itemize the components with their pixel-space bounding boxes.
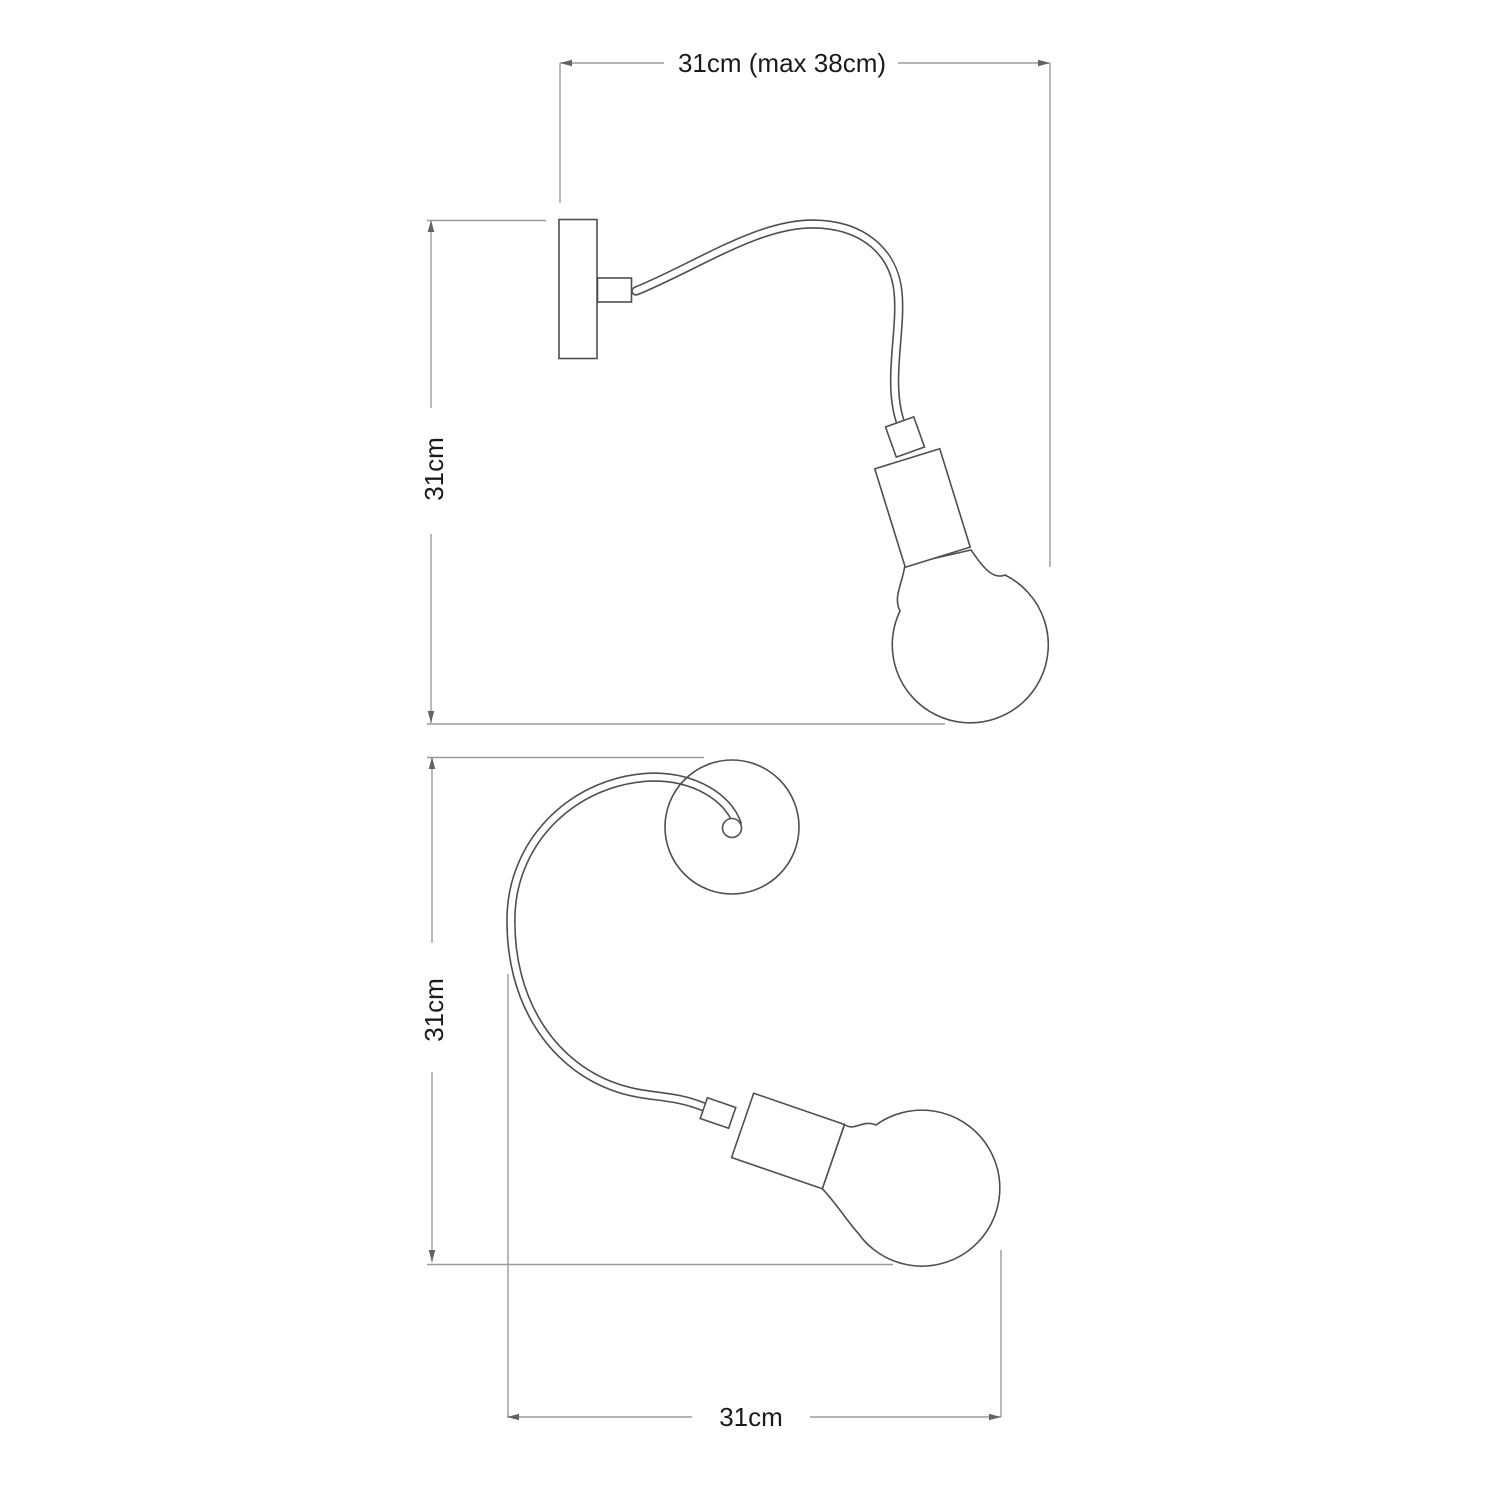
side-view-width-dimension-label: 31cm (max 38cm) bbox=[678, 48, 886, 78]
light-bulb bbox=[892, 550, 1048, 723]
top-view: 31cm 31cm bbox=[419, 757, 1001, 1432]
ferrule bbox=[700, 1098, 736, 1129]
side-view-height-dimension-label: 31cm bbox=[419, 437, 449, 501]
lamp-dimension-drawing: 31cm (max 38cm) 31cm bbox=[0, 0, 1500, 1500]
top-view-lamp bbox=[511, 760, 1000, 1266]
dimension-arrow bbox=[507, 1414, 519, 1421]
ferrule bbox=[885, 417, 924, 457]
flex-arm bbox=[636, 224, 900, 421]
lamp-socket bbox=[875, 449, 970, 568]
lamp-socket bbox=[732, 1093, 845, 1189]
top-view-height-dimension-label: 31cm bbox=[419, 978, 449, 1042]
dimension-arrow bbox=[428, 711, 435, 723]
mount-stub bbox=[598, 278, 632, 302]
dimension-arrow bbox=[429, 757, 436, 769]
flex-arm-tip bbox=[723, 819, 742, 838]
dimension-arrow bbox=[989, 1414, 1001, 1421]
dimension-arrow bbox=[428, 220, 435, 232]
side-view-lamp bbox=[559, 220, 1048, 723]
top-view-width-dimension-label: 31cm bbox=[719, 1402, 783, 1432]
side-view: 31cm (max 38cm) 31cm bbox=[419, 48, 1050, 724]
dimension-arrow bbox=[1038, 60, 1050, 67]
dimension-arrow bbox=[429, 1250, 436, 1262]
dimension-arrow bbox=[560, 60, 572, 67]
technical-drawing-page: 31cm (max 38cm) 31cm bbox=[0, 0, 1500, 1500]
top-view-dimensions: 31cm 31cm bbox=[419, 757, 1001, 1432]
wall-plate bbox=[559, 220, 597, 359]
light-bulb bbox=[822, 1110, 1000, 1266]
flex-arm bbox=[511, 777, 737, 1107]
